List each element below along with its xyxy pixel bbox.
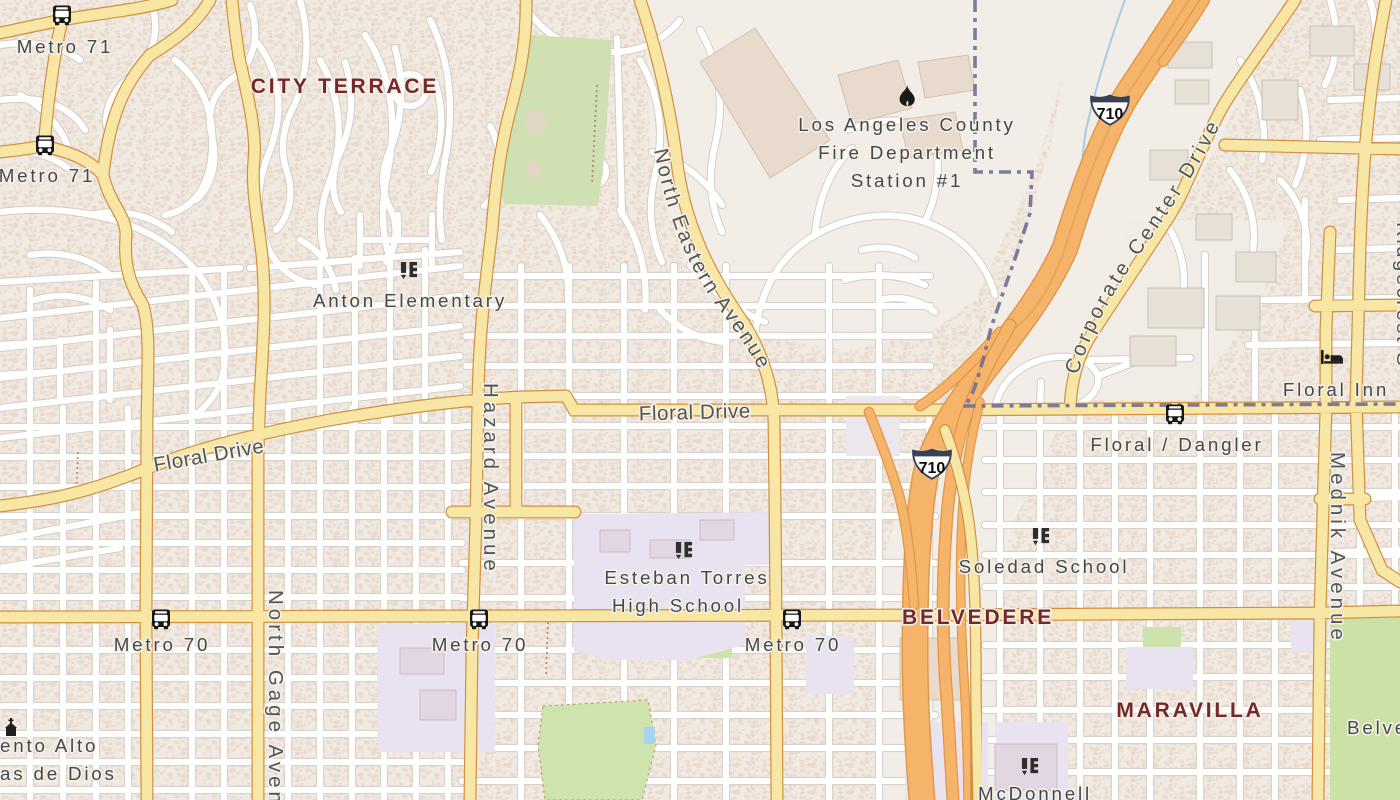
- svg-text:Soledad School: Soledad School: [959, 556, 1130, 577]
- svg-text:Anton Elementary: Anton Elementary: [313, 290, 507, 311]
- svg-text:ento Alto: ento Alto: [0, 735, 98, 756]
- svg-text:North Gage Avenue: North Gage Avenue: [264, 590, 287, 800]
- svg-text:High School: High School: [612, 595, 744, 616]
- svg-text:Esteban Torres: Esteban Torres: [604, 567, 769, 588]
- svg-text:Metro 71: Metro 71: [0, 165, 95, 186]
- svg-text:Los Angeles County: Los Angeles County: [798, 114, 1015, 135]
- svg-text:Fire Department: Fire Department: [818, 142, 996, 163]
- svg-text:Ridgecrest S: Ridgecrest S: [1392, 222, 1400, 368]
- svg-text:Metro 70: Metro 70: [745, 634, 842, 655]
- svg-text:Station #1: Station #1: [851, 170, 964, 191]
- svg-text:McDonnell: McDonnell: [978, 783, 1092, 800]
- svg-text:as de Dios: as de Dios: [0, 763, 117, 784]
- svg-text:Belvedere: Belvedere: [1347, 717, 1400, 738]
- svg-text:MARAVILLA: MARAVILLA: [1116, 699, 1263, 722]
- svg-text:Metro 70: Metro 70: [432, 634, 529, 655]
- svg-text:Floral / Dangler: Floral / Dangler: [1090, 434, 1263, 455]
- svg-text:Floral Inn: Floral Inn: [1283, 379, 1389, 400]
- svg-text:Mednik Avenue: Mednik Avenue: [1326, 452, 1349, 644]
- svg-text:Floral Drive: Floral Drive: [639, 400, 752, 426]
- svg-text:Metro 71: Metro 71: [17, 36, 114, 57]
- svg-text:CITY TERRACE: CITY TERRACE: [251, 75, 439, 98]
- svg-text:Hazard Avenue: Hazard Avenue: [479, 383, 502, 575]
- svg-text:Metro 70: Metro 70: [114, 634, 211, 655]
- svg-text:BELVEDERE: BELVEDERE: [902, 606, 1054, 629]
